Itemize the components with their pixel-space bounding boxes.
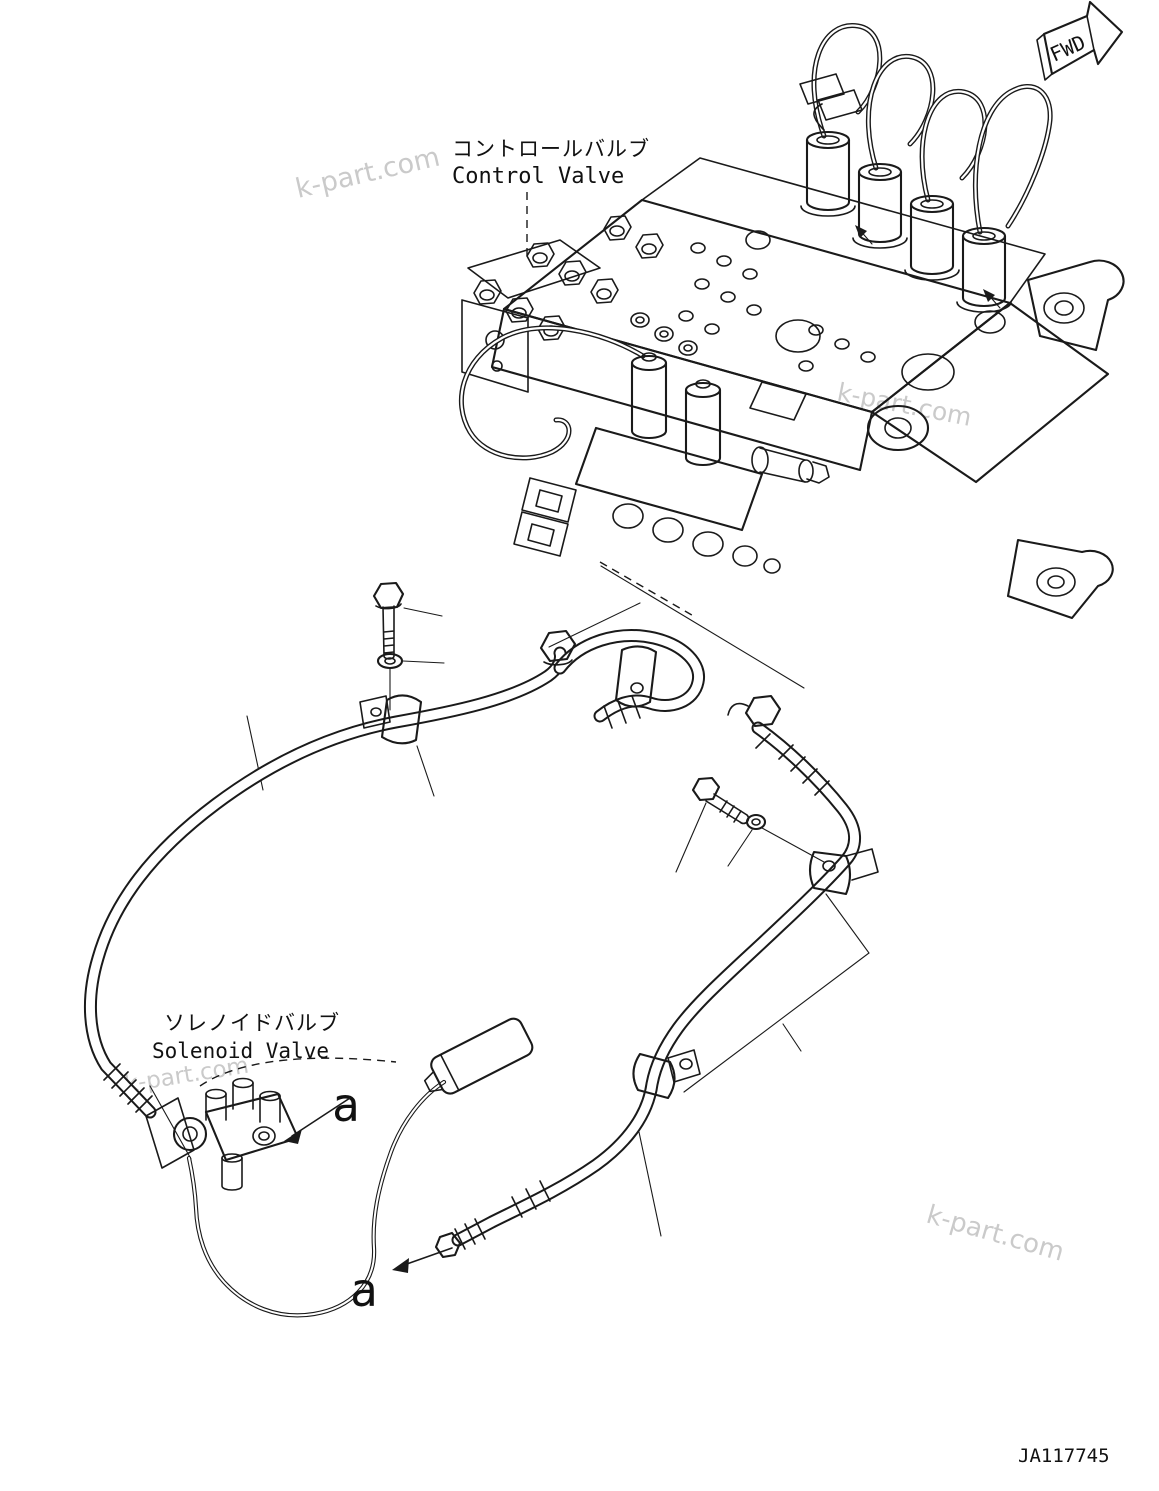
coil-connectors (800, 74, 862, 130)
washer (378, 654, 402, 668)
hose-harness (90, 631, 878, 1257)
washer (747, 815, 765, 829)
hose-right (458, 728, 855, 1240)
detail-marker-a: a (332, 1078, 360, 1132)
mounting-bolt (693, 778, 748, 823)
component-labels: コントロールバルブ Control Valve ソレノイドバルブ Solenoi… (152, 137, 1110, 1467)
solenoid-valve-label-en: Solenoid Valve (152, 1039, 329, 1063)
hose-hatching (104, 696, 829, 1217)
hose-fitting-elbow (728, 696, 780, 726)
solenoid-coils (800, 26, 1050, 312)
control-valve-label-en: Control Valve (452, 164, 624, 189)
fwd-arrow-icon: FWD (1037, 2, 1122, 80)
mounting-bolt (374, 583, 403, 659)
valve-bolt-cluster (462, 216, 697, 392)
fwd-label: FWD (1046, 30, 1089, 67)
detail-marker-a: a (350, 1263, 378, 1317)
fastener-leaders (390, 608, 824, 872)
watermark-text: k-part.com (923, 1200, 1067, 1268)
watermark-text: k-part.com (293, 142, 443, 205)
parts-diagram-page: k-part.com k-part.com k-part.com k-part.… (0, 0, 1159, 1491)
valve-front-face (492, 309, 872, 470)
solenoid-valve-label-jp: ソレノイドバルブ (164, 1011, 340, 1035)
control-valve-assembly (461, 26, 1123, 618)
detail-callouts: a a (284, 1078, 452, 1317)
parts-diagram-canvas: k-part.com k-part.com k-part.com k-part.… (0, 0, 1159, 1491)
watermarks: k-part.com k-part.com k-part.com k-part.… (123, 142, 1068, 1268)
pilot-valve-subassembly (461, 192, 829, 618)
drawing-number: JA117745 (1018, 1445, 1110, 1467)
leader-lines (150, 566, 869, 1236)
control-valve-label-jp: コントロールバルブ (452, 137, 650, 161)
